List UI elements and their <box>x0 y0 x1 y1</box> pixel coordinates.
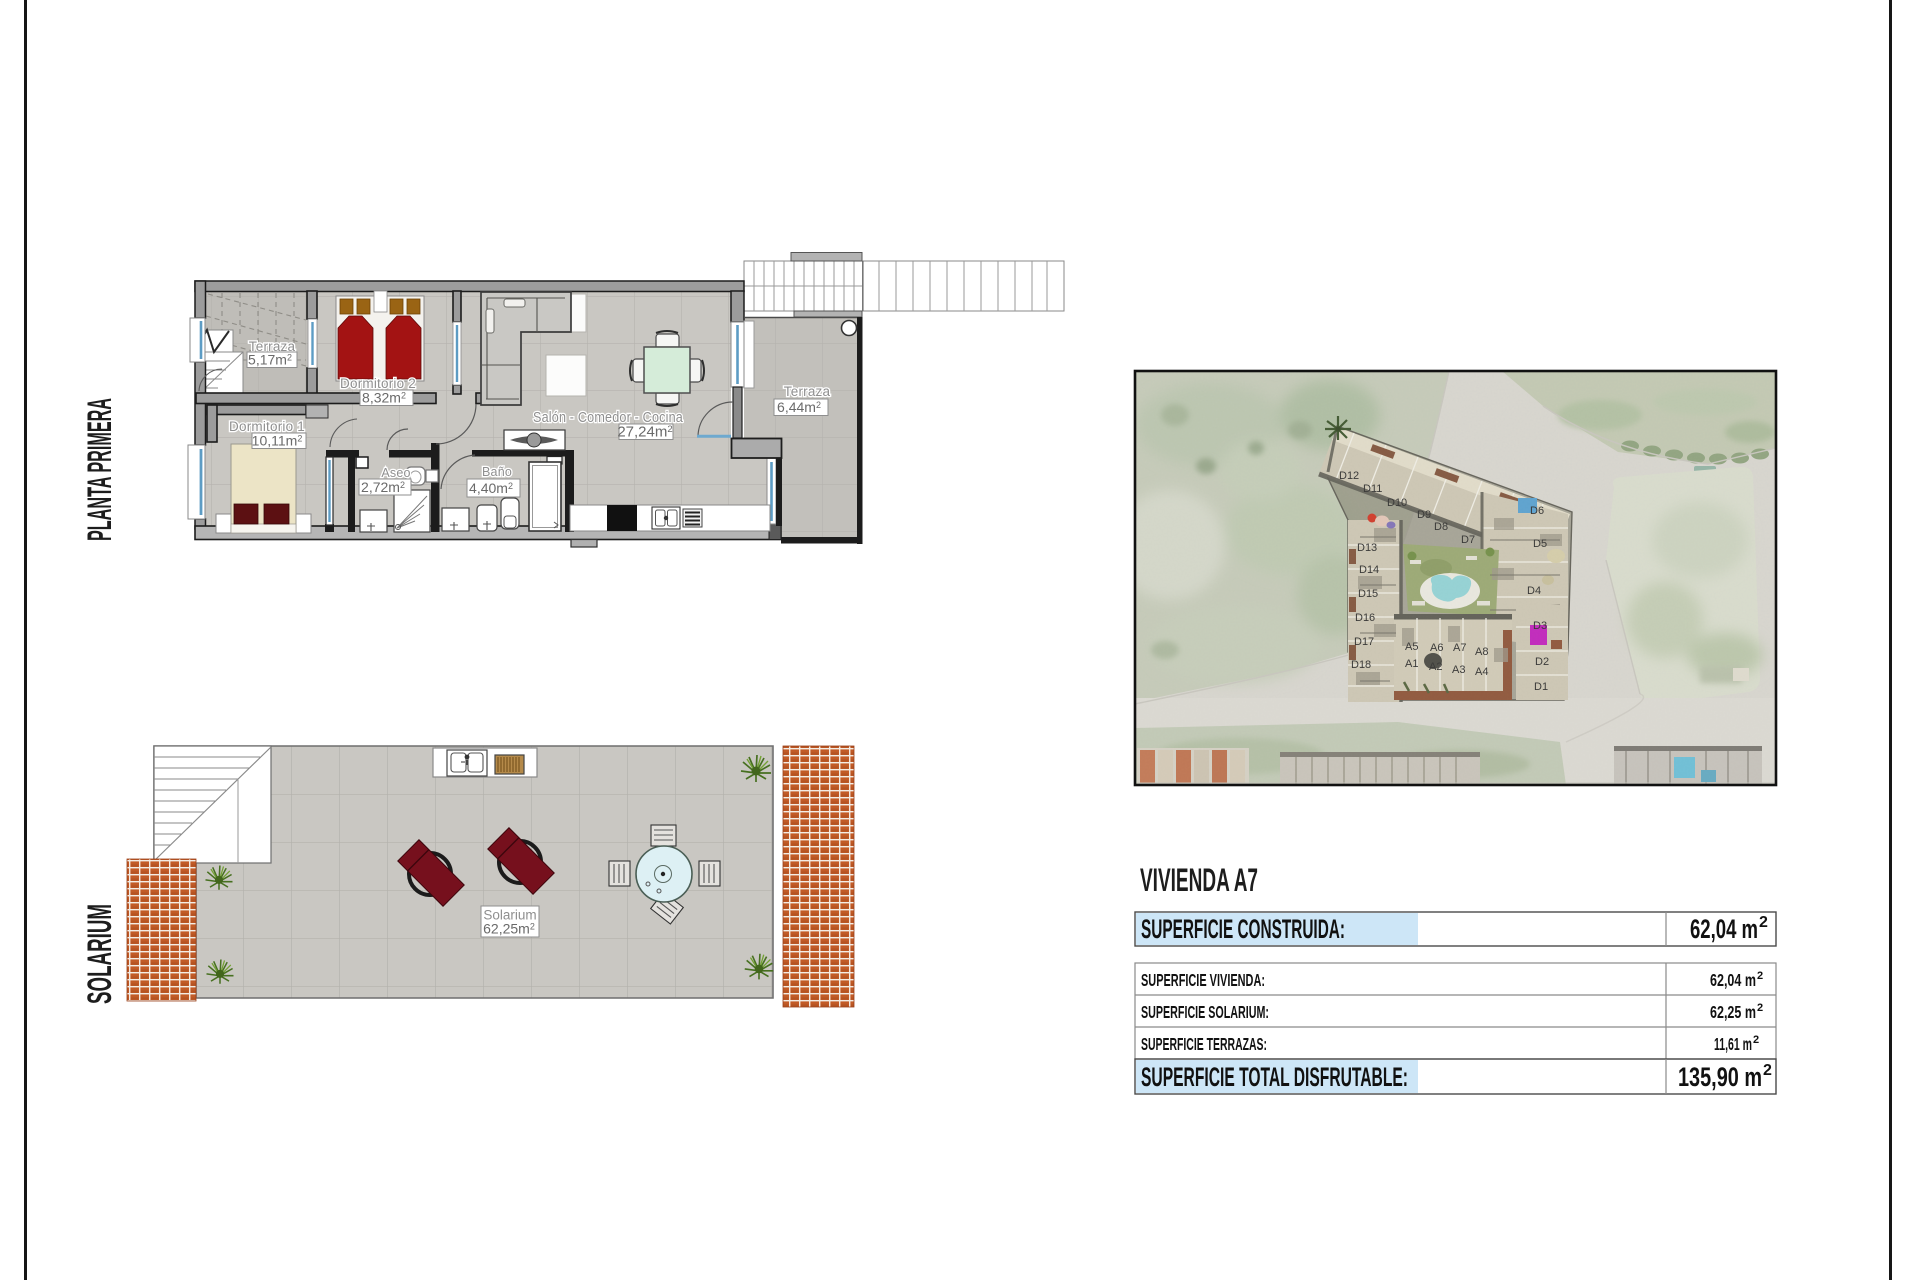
svg-text:62,04 m: 62,04 m <box>1710 970 1756 990</box>
svg-text:62,04 m: 62,04 m <box>1690 914 1758 944</box>
svg-text:SOLARIUM: SOLARIUM <box>81 904 119 1004</box>
svg-text:62,25m2: 62,25m2 <box>483 921 535 937</box>
svg-text:6,44m2: 6,44m2 <box>777 399 821 415</box>
svg-text:SUPERFICIE CONSTRUIDA:: SUPERFICIE CONSTRUIDA: <box>1141 914 1345 944</box>
svg-text:135,90 m: 135,90 m <box>1678 1062 1762 1092</box>
svg-text:10,11m2: 10,11m2 <box>252 433 303 449</box>
svg-text:2: 2 <box>1757 970 1763 982</box>
svg-text:SUPERFICIE VIVIENDA:: SUPERFICIE VIVIENDA: <box>1141 970 1265 990</box>
svg-text:PLANTA PRIMERA: PLANTA PRIMERA <box>81 398 119 541</box>
svg-text:4,40m2: 4,40m2 <box>469 480 513 496</box>
svg-text:2: 2 <box>1759 914 1768 931</box>
svg-text:2: 2 <box>1753 1034 1759 1046</box>
svg-text:SUPERFICIE TERRAZAS:: SUPERFICIE TERRAZAS: <box>1141 1034 1267 1054</box>
svg-text:Baño: Baño <box>482 465 512 479</box>
svg-text:62,25 m: 62,25 m <box>1710 1002 1756 1022</box>
svg-text:11,61 m: 11,61 m <box>1714 1034 1752 1054</box>
svg-text:VIVIENDA A7: VIVIENDA A7 <box>1140 862 1258 898</box>
svg-text:2: 2 <box>1757 1002 1763 1014</box>
svg-text:5,17m2: 5,17m2 <box>248 352 292 368</box>
svg-text:2: 2 <box>1763 1062 1772 1079</box>
svg-text:SUPERFICIE SOLARIUM:: SUPERFICIE SOLARIUM: <box>1141 1002 1269 1022</box>
svg-text:2,72m2: 2,72m2 <box>361 479 405 495</box>
svg-text:SUPERFICIE TOTAL DISFRUTABLE:: SUPERFICIE TOTAL DISFRUTABLE: <box>1141 1062 1408 1092</box>
svg-text:27,24m2: 27,24m2 <box>617 424 672 441</box>
svg-text:8,32m2: 8,32m2 <box>362 390 406 406</box>
svg-text:Terraza: Terraza <box>784 384 831 399</box>
svg-text:Aseo: Aseo <box>381 466 410 480</box>
